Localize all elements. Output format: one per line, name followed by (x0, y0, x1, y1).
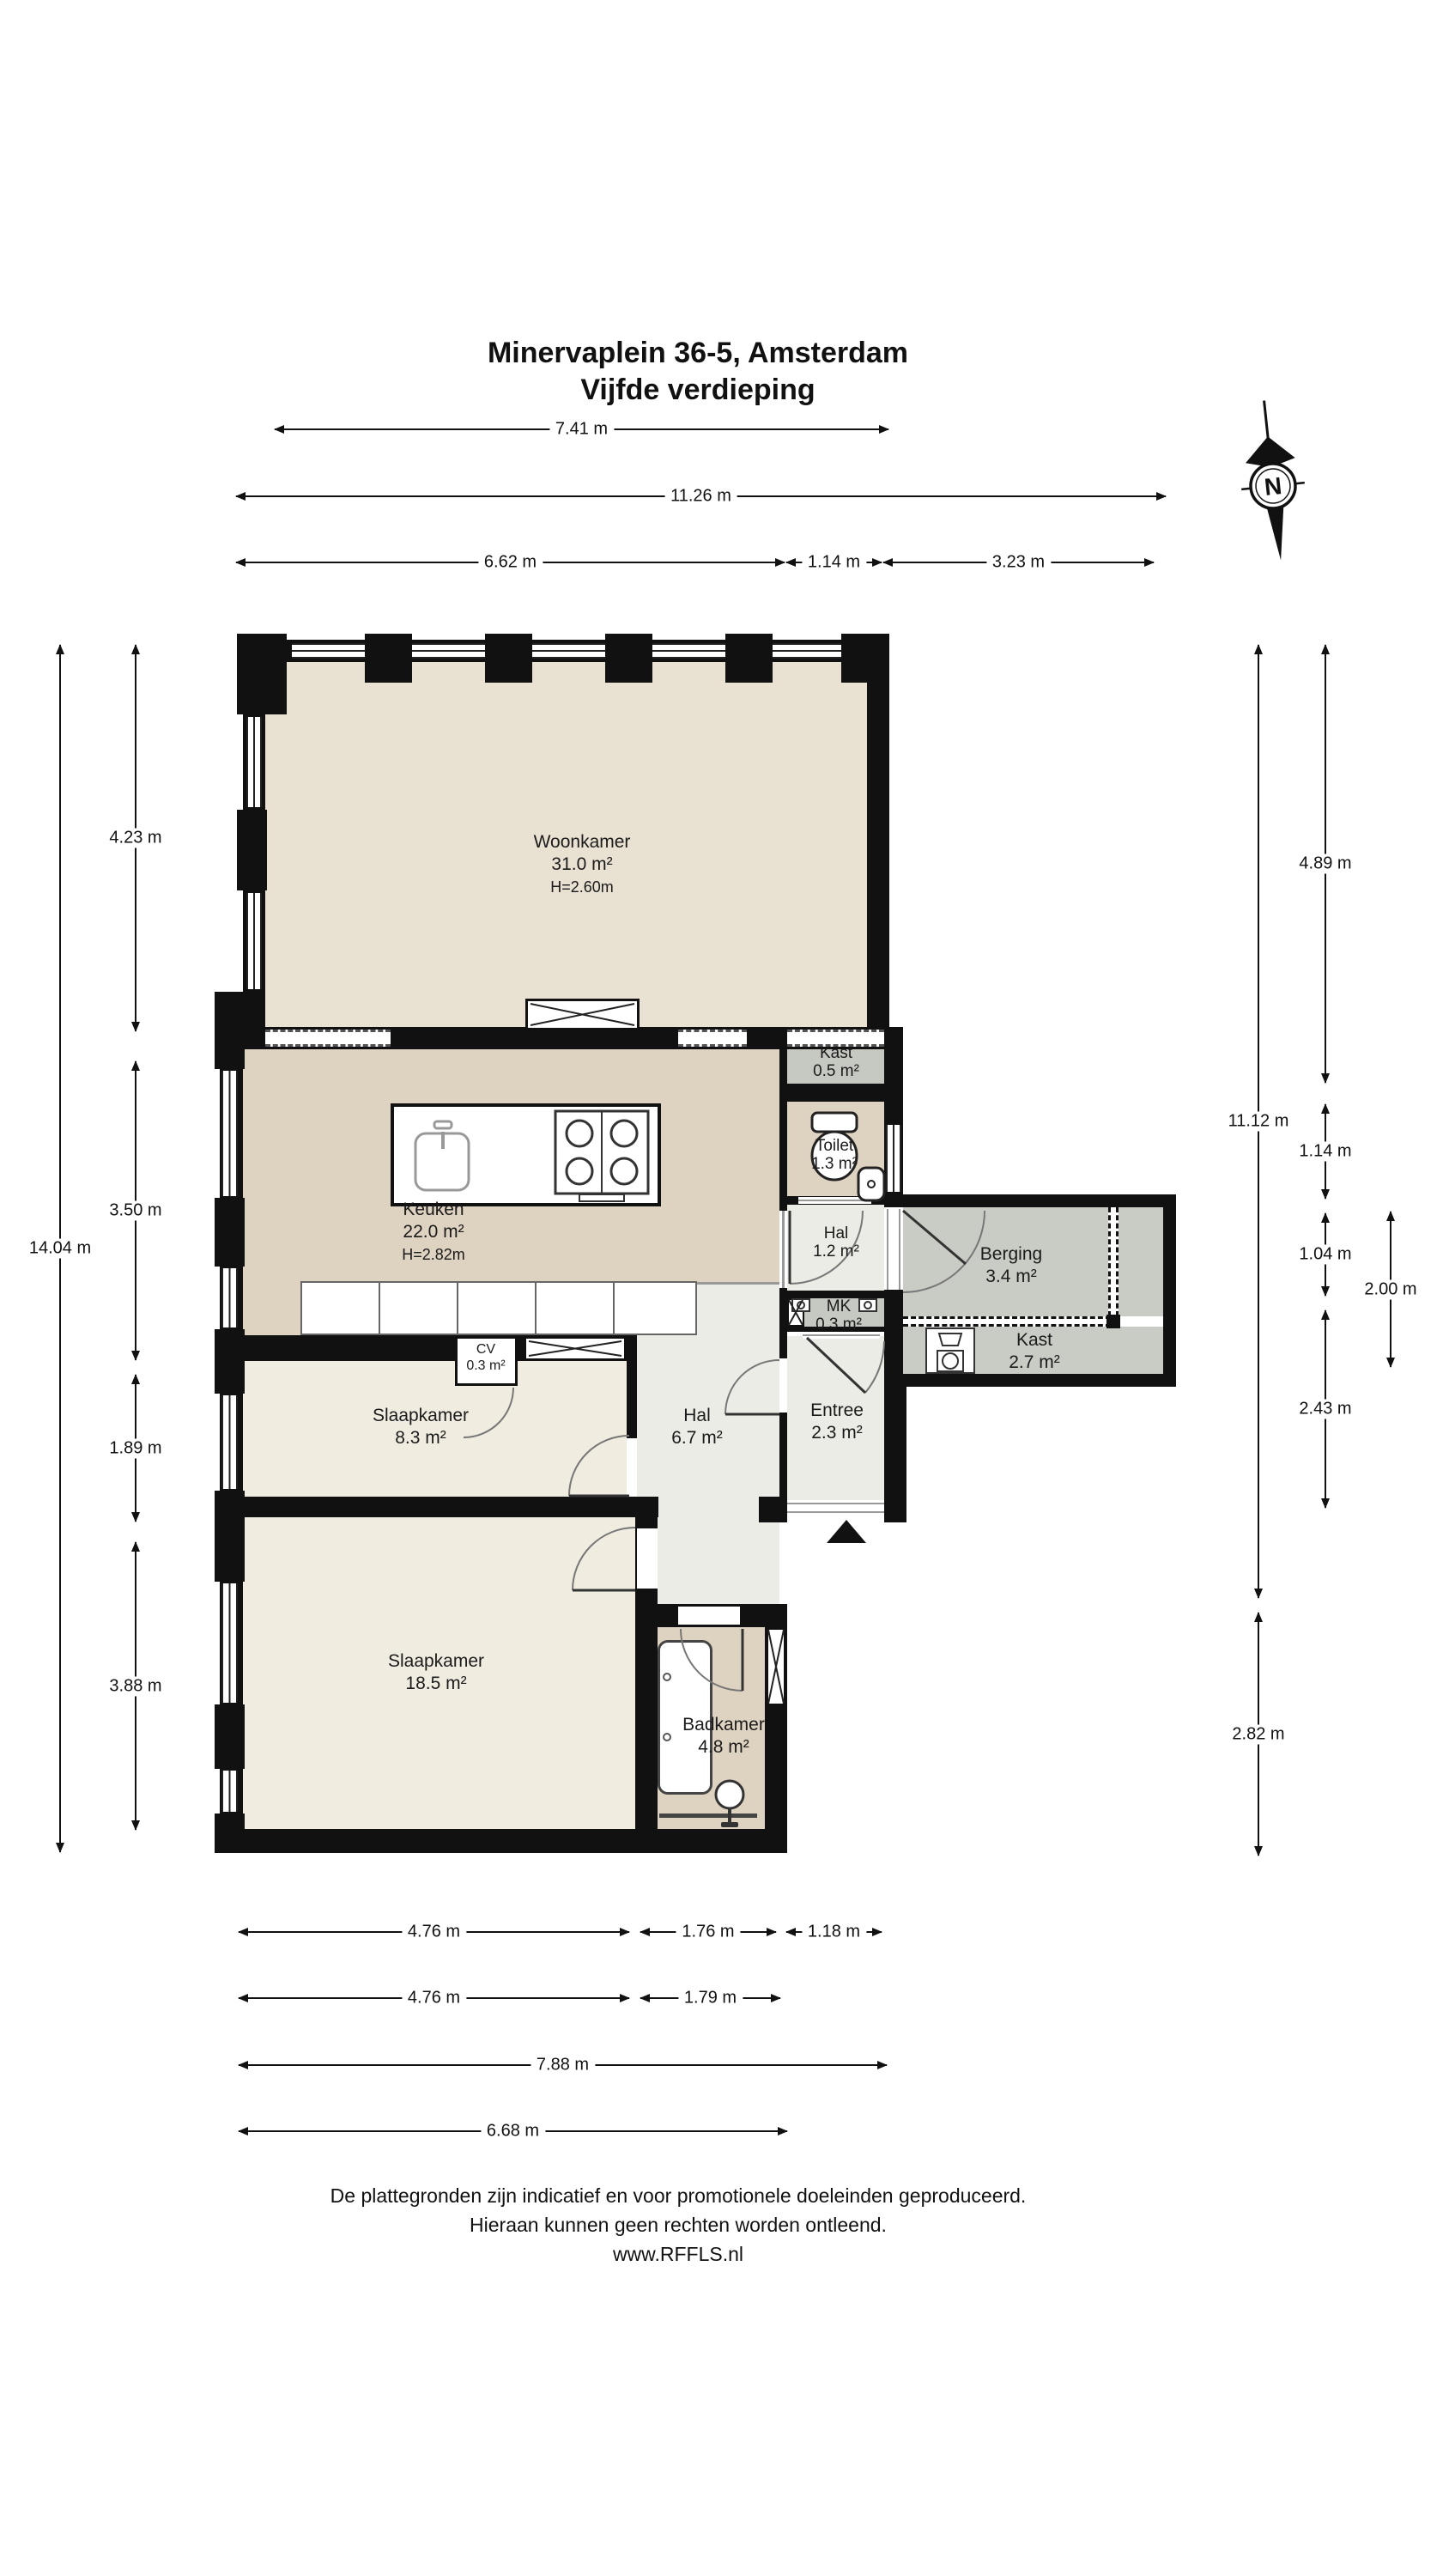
wall-pier (215, 1329, 245, 1394)
open-connection (678, 1030, 747, 1047)
compass-icon: N (1209, 385, 1337, 582)
label-kast-boven: Kast 0.5 m² (813, 1044, 859, 1080)
wall-segment (759, 1497, 787, 1522)
dimension-top-3: 6.62 m (235, 556, 785, 569)
label-keuken: Keuken 22.0 m² H=2.82m (402, 1199, 465, 1266)
label-berging: Berging 3.4 m² (980, 1243, 1042, 1288)
wall-segment (884, 1288, 903, 1387)
pedestal-sink-icon (711, 1779, 749, 1829)
window (412, 643, 485, 659)
floorplan-page: Minervaplein 36-5, Amsterdam Vijfde verd… (0, 0, 1449, 2576)
vent-shaft (767, 1628, 785, 1705)
door-opening (884, 1209, 903, 1290)
wall-pier (841, 634, 889, 683)
wall-pier (215, 1814, 245, 1853)
wall-pier (237, 810, 267, 890)
window (221, 1268, 238, 1327)
title-address: Minervaplein 36-5, Amsterdam (488, 335, 908, 372)
sink-icon (410, 1118, 477, 1194)
wall-pier (215, 1491, 245, 1582)
dimension-right-7: 2.00 m (1384, 1211, 1397, 1368)
window (886, 1125, 901, 1192)
label-slaapkamer-groot: Slaapkamer 18.5 m² (388, 1650, 484, 1695)
wall-segment (1163, 1194, 1176, 1387)
compass-north-label: N (1263, 472, 1282, 501)
meter-icon (791, 1298, 810, 1312)
door-opening (627, 1438, 637, 1497)
disclaimer: De plattegronden zijn indicatief en voor… (330, 2181, 1027, 2269)
label-entree: Entree 2.3 m² (810, 1400, 864, 1444)
open-connection (265, 1030, 391, 1047)
flue-shaft (524, 1336, 627, 1361)
wall-pier (365, 634, 412, 683)
label-badkamer: Badkamer 4.8 m² (682, 1714, 765, 1759)
wall-segment (779, 1049, 787, 1211)
dimension-bottom-3: 1.18 m (785, 1925, 882, 1939)
dimension-right-5: 1.04 m (1319, 1212, 1332, 1297)
dimension-right-3: 4.89 m (1319, 644, 1332, 1084)
disclaimer-line1: De plattegronden zijn indicatief en voor… (330, 2181, 1027, 2210)
dimension-top-1: 7.41 m (274, 422, 889, 436)
wall-segment (220, 1497, 635, 1517)
dimension-top-5: 3.23 m (882, 556, 1155, 569)
wall-pier (605, 634, 652, 683)
room-hal-lower (658, 1516, 779, 1604)
wall-segment (220, 1829, 787, 1853)
wall-segment (787, 1084, 884, 1102)
wall-pier (215, 992, 245, 1069)
wall-pier (725, 634, 773, 683)
flue-shaft (525, 999, 640, 1030)
window (246, 893, 262, 989)
dimension-bottom-5: 1.79 m (640, 1991, 781, 2005)
wall-segment (1106, 1315, 1120, 1328)
window (652, 643, 725, 659)
tap-icon (663, 1733, 671, 1741)
door-opening (678, 1607, 740, 1625)
window (773, 643, 841, 659)
dimension-left-3: 1.89 m (129, 1374, 142, 1522)
label-kast-berging: Kast 2.7 m² (1009, 1329, 1060, 1374)
entrance-marker-icon (827, 1520, 866, 1543)
wall-segment (779, 1288, 787, 1358)
door-opening (779, 1358, 787, 1413)
label-cv: CV 0.3 m² (466, 1341, 505, 1374)
dimension-left-total: 14.04 m (53, 644, 67, 1853)
wall-pier (237, 634, 287, 714)
disclaimer-website: www.RFFLS.nl (330, 2239, 1027, 2269)
dimension-right-2: 2.82 m (1252, 1612, 1265, 1856)
dimension-bottom-4: 4.76 m (238, 1991, 630, 2005)
dimension-left-4: 3.88 m (129, 1541, 142, 1831)
washing-machine-icon (925, 1327, 975, 1374)
dimension-bottom-1: 4.76 m (238, 1925, 630, 1939)
dimension-left-1: 4.23 m (129, 644, 142, 1032)
entree-door-threshold (787, 1500, 884, 1516)
dimension-right-4: 1.14 m (1319, 1103, 1332, 1200)
kitchen-counter (535, 1281, 615, 1335)
kitchen-counter (457, 1281, 537, 1335)
hand-basin-icon (857, 1166, 886, 1202)
window (246, 717, 262, 807)
dimension-top-4: 1.14 m (785, 556, 882, 569)
kitchen-counter (300, 1281, 380, 1335)
label-woonkamer: Woonkamer 31.0 m² H=2.60m (534, 831, 631, 898)
dimension-left-2: 3.50 m (129, 1060, 142, 1361)
window (292, 643, 365, 659)
wall-segment (884, 1497, 906, 1522)
label-toilet: Toilet 1.3 m² (811, 1137, 858, 1173)
wall-segment (884, 1374, 1176, 1387)
window (221, 1583, 238, 1703)
dimension-bottom-6: 7.88 m (238, 2058, 888, 2072)
kitchen-counter (613, 1281, 697, 1335)
title-floor: Vijfde verdieping (488, 372, 908, 409)
dimension-top-2: 11.26 m (235, 489, 1167, 503)
window (221, 1771, 238, 1812)
label-hal: Hal 6.7 m² (671, 1405, 723, 1449)
wall-pier (485, 634, 532, 683)
dimension-right-1: 11.12 m (1252, 644, 1265, 1599)
wall-segment (884, 1194, 1176, 1207)
wall-segment (867, 640, 889, 1049)
dimension-bottom-7: 6.68 m (238, 2124, 788, 2138)
kitchen-counter (379, 1281, 458, 1335)
label-hal-klein: Hal 1.2 m² (813, 1224, 859, 1261)
label-slaapkamer-klein: Slaapkamer 8.3 m² (373, 1405, 469, 1449)
dimension-right-6: 2.43 m (1319, 1309, 1332, 1509)
berging-partition-dashed (1108, 1207, 1119, 1316)
hob-icon (554, 1109, 650, 1202)
dimension-bottom-2: 1.76 m (640, 1925, 777, 1939)
wall-segment (779, 1413, 787, 1500)
door-opening (637, 1528, 658, 1589)
page-title: Minervaplein 36-5, Amsterdam Vijfde verd… (488, 335, 908, 409)
window (221, 1071, 238, 1196)
window (532, 643, 605, 659)
berging-kast-partition-dashed (903, 1316, 1119, 1327)
door-opening (779, 1211, 787, 1288)
disclaimer-line2: Hieraan kunnen geen rechten worden ontle… (330, 2210, 1027, 2239)
tap-icon (663, 1673, 671, 1681)
label-mk: MK 0.3 m² (815, 1297, 862, 1334)
window (221, 1395, 238, 1489)
wall-pier (215, 1704, 245, 1769)
wall-pier (215, 1198, 245, 1267)
